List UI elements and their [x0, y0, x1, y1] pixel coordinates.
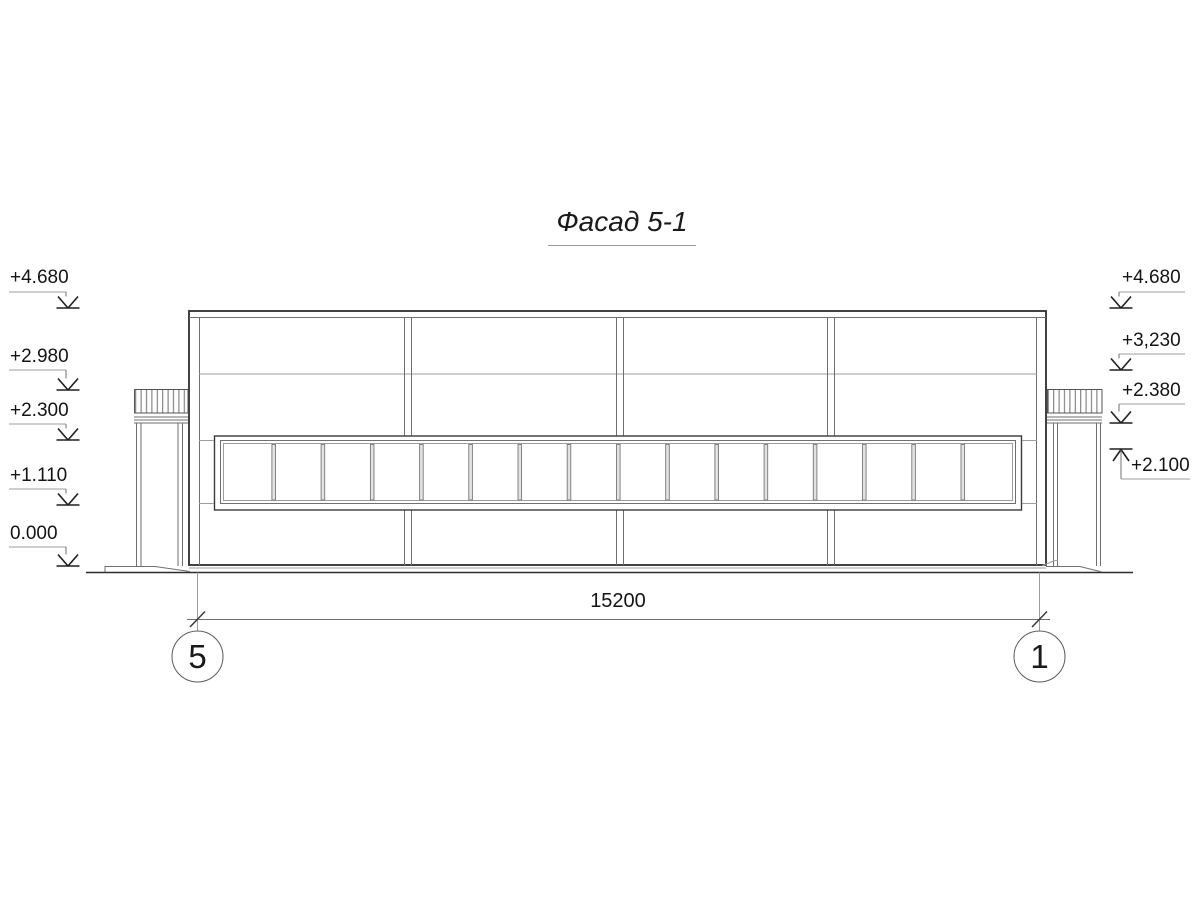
facade-drawing-canvas: Фасад 5-1 +4.680 +2.980 +2.300 +1.110 0.… — [0, 0, 1200, 900]
elevation-mark-right-4680 — [1110, 292, 1186, 308]
window-pane-dividers — [272, 445, 965, 501]
elevation-label-left-2: +2.980 — [10, 346, 69, 368]
elevation-mark-left-2300 — [9, 424, 80, 440]
right-annex-grille — [1048, 390, 1103, 414]
left-annex — [134, 390, 188, 567]
elevation-label-left-4: +1.110 — [10, 465, 67, 487]
elevation-label-left-5: 0.000 — [10, 523, 58, 545]
elevation-mark-right-2380 — [1110, 404, 1186, 423]
facade-linework — [0, 0, 1200, 900]
axis-bubble-label-5: 5 — [172, 638, 223, 676]
elevation-label-left-1: +4.680 — [10, 267, 69, 289]
elevation-mark-right-3230 — [1110, 354, 1186, 370]
elevation-label-left-3: +2.300 — [10, 400, 69, 422]
dimension-label: 15200 — [568, 590, 668, 613]
axis-bubble-label-1: 1 — [1014, 638, 1065, 676]
axis-bubbles — [172, 631, 1065, 682]
building-outline — [189, 311, 1046, 565]
ribbon-window — [199, 436, 1037, 510]
facade-panel-joints — [405, 318, 835, 566]
elevation-label-right-3: +2.380 — [1122, 380, 1181, 402]
elevation-mark-left-0000 — [9, 547, 80, 566]
elevation-label-right-4: +2.100 — [1131, 455, 1190, 477]
elevation-mark-left-1110 — [9, 489, 80, 505]
left-annex-grille — [135, 390, 189, 414]
elevation-label-right-1: +4.680 — [1122, 267, 1181, 289]
right-annex — [1047, 390, 1102, 567]
drawing-title: Фасад 5-1 — [548, 206, 696, 246]
elevation-label-right-2: +3,230 — [1122, 330, 1181, 352]
elevation-mark-left-4680 — [9, 292, 80, 308]
ground-line — [86, 560, 1133, 573]
elevation-mark-left-2980 — [9, 370, 80, 390]
